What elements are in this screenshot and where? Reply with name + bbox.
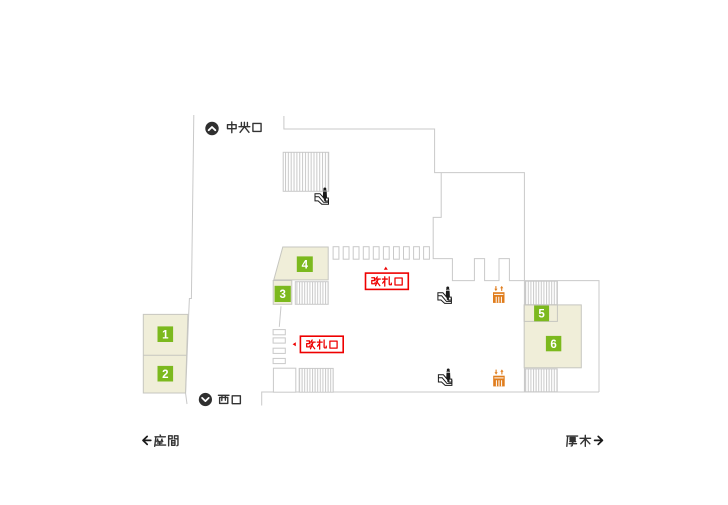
svg-text:5: 5 [538,309,545,321]
svg-text:4: 4 [302,259,309,271]
svg-text:2: 2 [162,369,168,381]
svg-text:3: 3 [279,289,285,301]
svg-text:1: 1 [162,329,169,341]
svg-text:6: 6 [550,339,556,351]
